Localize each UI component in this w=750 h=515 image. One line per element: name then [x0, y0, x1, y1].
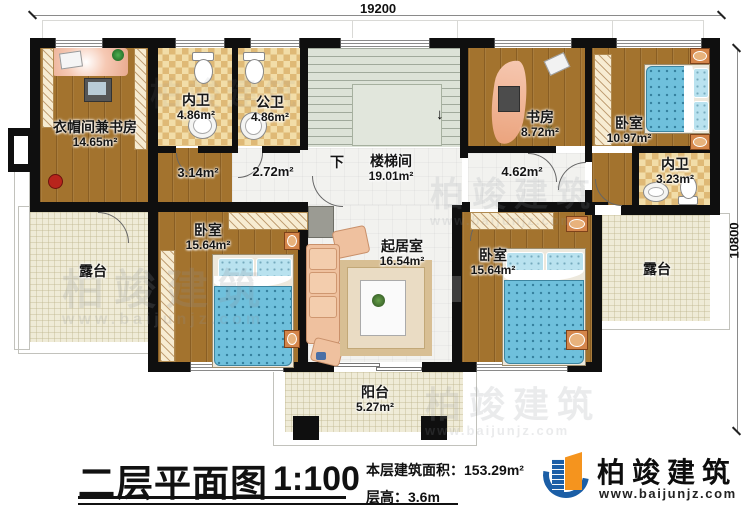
- sliding-door-panel: [376, 367, 422, 371]
- balcony-column: [293, 416, 319, 440]
- bed-blanket: [504, 280, 584, 364]
- sliding-door-panel: [334, 363, 380, 367]
- pillow: [546, 252, 584, 272]
- room-label-bath-public: 公卫 4.86m²: [240, 95, 300, 124]
- roof-eave-outline: [612, 20, 704, 39]
- wall: [148, 205, 158, 372]
- room-name: 衣帽间兼书房: [40, 120, 150, 136]
- room-name: 卧室: [460, 248, 526, 264]
- wall: [632, 153, 639, 205]
- pillow: [256, 258, 292, 278]
- wall: [585, 148, 592, 162]
- wardrobe: [470, 212, 554, 230]
- room-name: 内卫: [644, 157, 706, 173]
- room-name: 楼梯间: [358, 154, 424, 170]
- room-label-bath-left: 内卫 4.86m²: [160, 93, 232, 122]
- stairs-down-label: 下: [326, 155, 348, 171]
- corridor-mid-area: 2.72m²: [246, 165, 300, 180]
- room-area: 10.97m²: [596, 132, 662, 145]
- room-label-bath-right: 内卫 3.23m²: [644, 157, 706, 186]
- plant: [372, 294, 385, 307]
- roof-eave-outline: [352, 20, 458, 39]
- nightstand: [284, 330, 300, 348]
- nightstand: [690, 134, 710, 150]
- room-area: 15.64m²: [460, 264, 526, 277]
- room-label-cloakroom: 衣帽间兼书房 14.65m²: [40, 120, 150, 149]
- wall: [585, 46, 592, 148]
- wall: [148, 362, 190, 372]
- logo-website: www.baijunjz.com: [599, 486, 737, 501]
- room-area: 8.72m²: [505, 126, 575, 139]
- down-text: 下: [326, 155, 348, 171]
- computer-monitor: [498, 86, 520, 112]
- room-area: 3.14m²: [168, 166, 228, 181]
- wall: [30, 38, 40, 212]
- logo-building-blue: [552, 459, 564, 492]
- door-opening: [595, 205, 621, 215]
- corridor-left-area: 3.14m²: [168, 166, 228, 181]
- room-area: 19.01m²: [358, 170, 424, 183]
- sofa-cushion: [309, 272, 337, 294]
- logo-building-orange: [565, 452, 582, 490]
- wall: [592, 215, 602, 372]
- chair: [48, 174, 63, 189]
- plant: [112, 49, 124, 61]
- wall: [300, 46, 308, 150]
- nightstand: [690, 48, 710, 64]
- nightstand: [284, 232, 300, 250]
- room-label-stairwell: 楼梯间 19.01m²: [358, 154, 424, 183]
- room-area: 4.62m²: [492, 165, 552, 180]
- window: [340, 38, 430, 48]
- wall: [262, 146, 300, 153]
- toilet-icon: [194, 59, 213, 84]
- window: [616, 38, 702, 48]
- balcony-column: [421, 416, 447, 440]
- room-label-bedroom-left: 卧室 15.64m²: [168, 223, 248, 252]
- wall: [710, 38, 720, 215]
- bed-blanket: [214, 286, 292, 366]
- room-area: 4.86m²: [240, 111, 300, 124]
- corridor-right-area: 4.62m²: [492, 165, 552, 180]
- room-area: 14.65m²: [40, 136, 150, 149]
- wall: [462, 202, 470, 212]
- stair-landing: [352, 84, 442, 146]
- room-label-bedroom-top-right: 卧室 10.97m²: [596, 116, 662, 145]
- wall: [422, 362, 476, 372]
- laptop: [59, 51, 83, 70]
- room-area: 16.54m²: [364, 255, 440, 268]
- pillow: [693, 101, 709, 131]
- logo-brand-name: 柏竣建筑: [597, 451, 737, 491]
- toilet-icon: [245, 59, 264, 84]
- wall: [498, 202, 608, 212]
- room-label-terrace-right: 露台: [632, 262, 682, 278]
- window: [494, 38, 572, 48]
- nightstand: [566, 330, 588, 350]
- room-name: 书房: [505, 110, 575, 126]
- pillow: [218, 258, 254, 278]
- floor-item: [316, 352, 326, 360]
- wall: [198, 146, 238, 153]
- top-dimension-value: 19200: [360, 1, 396, 16]
- wall: [621, 205, 720, 215]
- room-name: 露台: [68, 264, 118, 280]
- room-name: 起居室: [364, 239, 440, 255]
- room-name: 卧室: [168, 223, 248, 239]
- room-area: 3.23m²: [644, 173, 706, 186]
- stairs-down-arrow-icon: ↓: [436, 106, 444, 123]
- pillow: [693, 68, 709, 98]
- monitor-screen: [88, 82, 106, 95]
- wardrobe: [42, 48, 54, 128]
- terrace-left-railing: [18, 206, 158, 354]
- room-label-balcony: 阳台 5.27m²: [346, 385, 404, 414]
- floor-plan-canvas: 19200 10800 ↓: [0, 0, 750, 515]
- room-label-living-room: 起居室 16.54m²: [364, 239, 440, 268]
- window: [55, 38, 103, 48]
- wall: [30, 202, 128, 212]
- wall: [232, 46, 238, 146]
- scale-label: 1:100: [273, 460, 360, 499]
- room-name: 卧室: [596, 116, 662, 132]
- coffee-table: [360, 280, 406, 336]
- sofa-cushion: [309, 248, 337, 270]
- wall: [156, 146, 176, 153]
- dresser: [566, 216, 588, 232]
- room-area: 2.72m²: [246, 165, 300, 180]
- room-area: 15.64m²: [168, 239, 248, 252]
- room-name: 阳台: [346, 385, 404, 401]
- logo-building-icon: [541, 446, 593, 504]
- room-label-study: 书房 8.72m²: [505, 110, 575, 139]
- window: [175, 38, 225, 48]
- side-table: [308, 206, 334, 238]
- room-area: 5.27m²: [346, 401, 404, 414]
- tv: [452, 276, 461, 302]
- room-label-bedroom-right: 卧室 15.64m²: [460, 248, 526, 277]
- sofa-cushion: [309, 296, 337, 318]
- room-label-terrace-left: 露台: [68, 264, 118, 280]
- room-name: 露台: [632, 262, 682, 278]
- wall: [468, 146, 556, 153]
- room-area: 4.86m²: [160, 109, 232, 122]
- room-name: 公卫: [240, 95, 300, 111]
- window: [250, 38, 300, 48]
- wardrobe: [160, 250, 175, 362]
- floor-height-label: 层高：3.6m: [366, 487, 440, 507]
- floor-area-label: 本层建筑面积：153.29m²: [366, 460, 524, 480]
- wall: [460, 46, 468, 158]
- bay-window: [14, 136, 28, 164]
- room-name: 内卫: [160, 93, 232, 109]
